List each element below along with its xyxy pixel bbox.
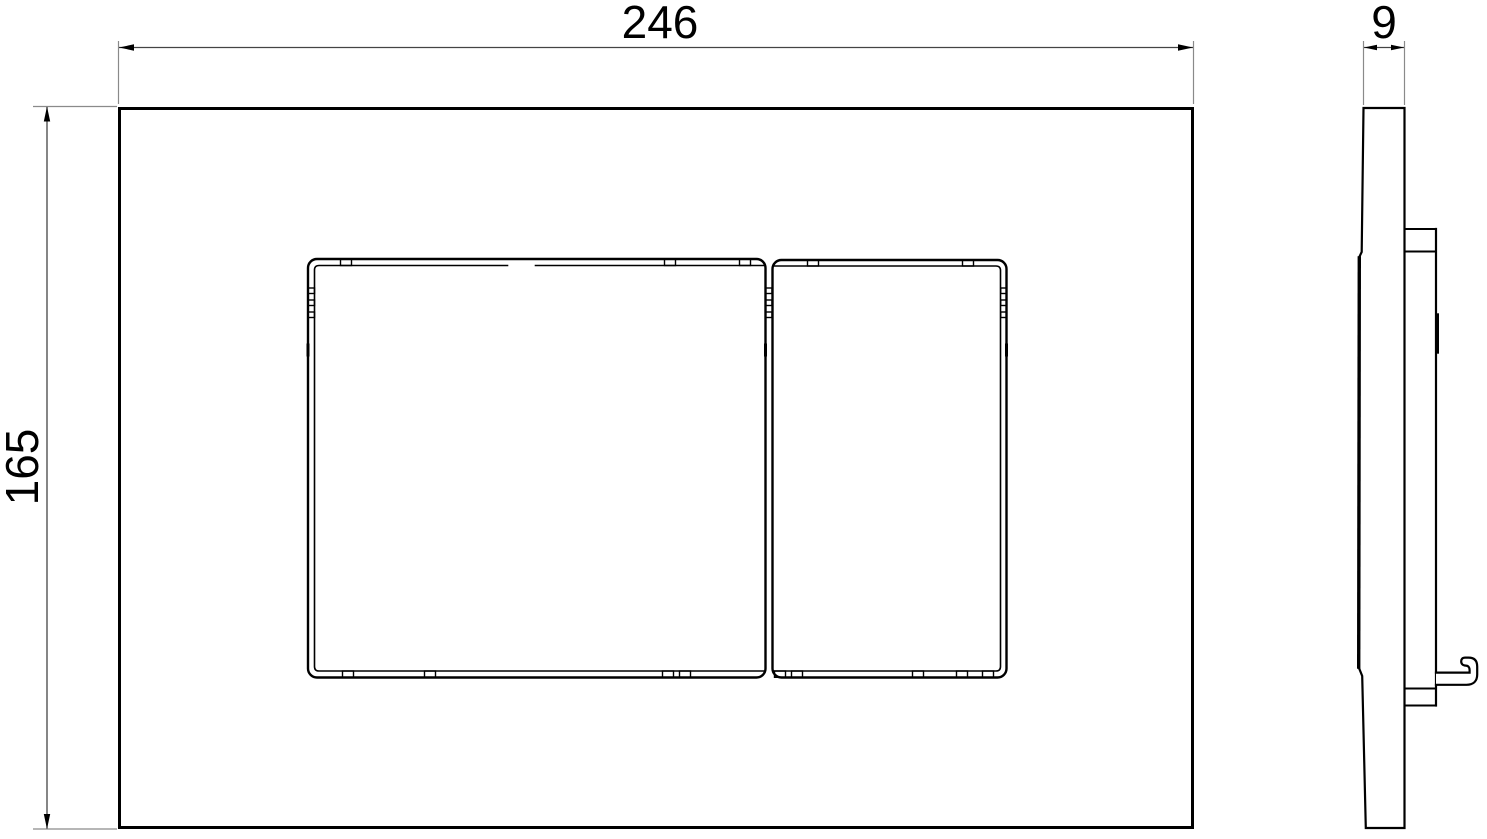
left-button-inner-line (315, 266, 765, 672)
side-button-front (1359, 258, 1360, 667)
front-view (120, 109, 1193, 828)
right-button-inner-line (774, 266, 1001, 671)
arrow-up-icon (44, 107, 50, 122)
technical-drawing: 246 165 9 (0, 0, 1487, 839)
arrow-right-icon (1178, 44, 1193, 50)
left-button (308, 259, 766, 678)
drawing-canvas: 246 165 9 (0, 0, 1487, 839)
width-dimension-label: 246 (622, 0, 699, 48)
right-button (773, 260, 1007, 678)
side-view (1359, 108, 1478, 828)
mounting-hook (1436, 658, 1477, 685)
plate-outline (120, 109, 1193, 828)
height-dimension-label: 165 (0, 429, 48, 506)
left-button-outline (308, 259, 766, 678)
arrow-left-icon (119, 44, 134, 50)
side-profile-outline (1359, 108, 1405, 828)
extension-lines (33, 41, 1405, 829)
mounting-frame (1405, 229, 1438, 706)
right-button-outline (773, 260, 1007, 678)
arrow-down-icon (44, 814, 50, 829)
dimension-labels: 246 165 9 (0, 0, 1397, 505)
button-detail-ticks (308, 259, 1007, 677)
depth-dimension-label: 9 (1371, 0, 1397, 48)
dimension-lines (47, 48, 1404, 829)
dimension-arrows (44, 44, 1404, 829)
